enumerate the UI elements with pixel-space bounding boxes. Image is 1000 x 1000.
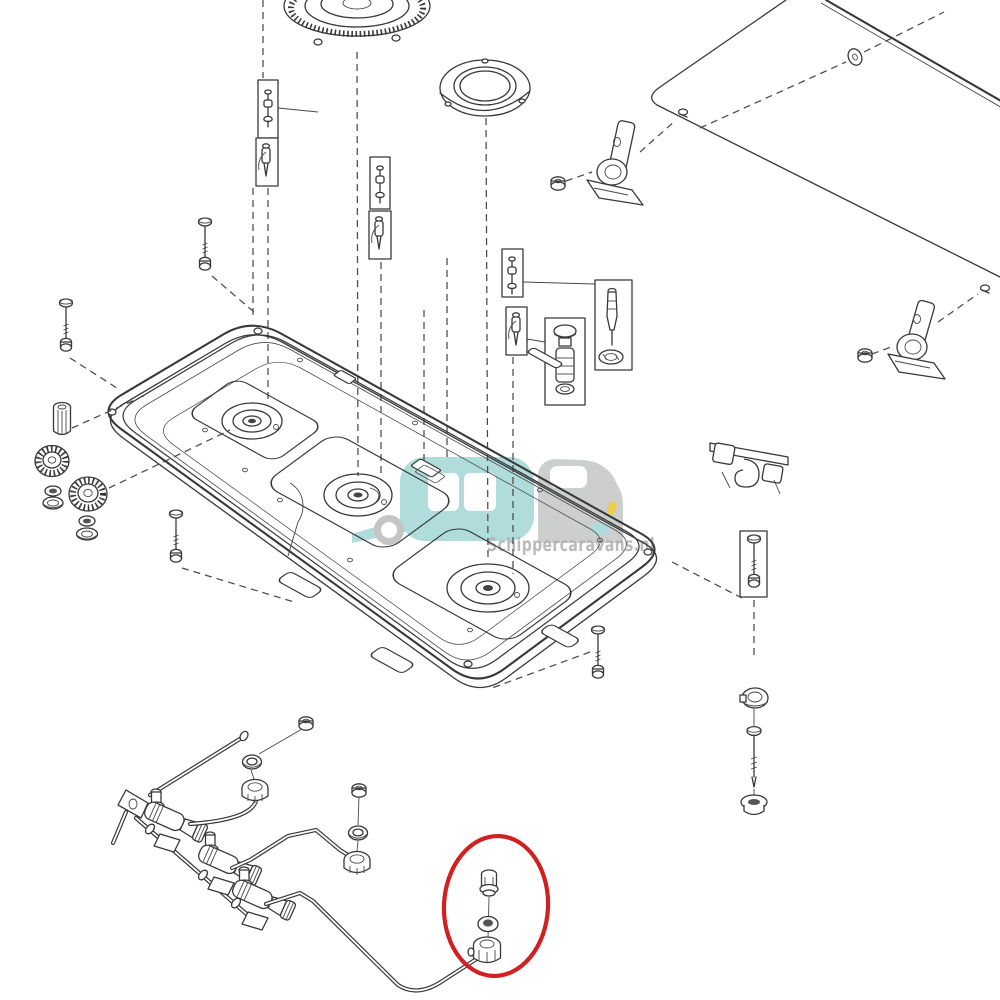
caravan-wheel	[378, 519, 401, 542]
boxed-spark-electrode	[595, 280, 632, 370]
burner-feed-pipe-3	[266, 893, 478, 990]
long-screw	[747, 727, 761, 788]
diagram-canvas: Schippercaravans.nl	[0, 0, 1000, 1000]
jet-screw	[480, 870, 498, 896]
mounting-screw-1	[60, 299, 73, 351]
manifold-elbow	[118, 790, 148, 818]
mounting-screw-3	[170, 510, 183, 562]
knurled-burner-cap-medium	[69, 477, 107, 511]
clamp-ring	[740, 688, 768, 708]
hinge-nut-left	[551, 177, 565, 190]
base-ring-medium	[77, 528, 98, 540]
burner-feed-pipe-1	[190, 795, 256, 824]
boxed-screw	[740, 531, 767, 597]
mounting-screw-2	[199, 218, 212, 270]
glass-lid-panel	[652, 0, 1000, 293]
boxed-electrode-left	[256, 138, 278, 186]
boxed-igniter-jet-left	[258, 80, 278, 138]
watermark-logo: Schippercaravans.nl	[352, 457, 655, 556]
gas-valve-1	[142, 789, 208, 852]
knurled-burner-cap-small	[35, 446, 69, 477]
mounting-screw-4	[592, 626, 605, 678]
lid-grommet	[846, 47, 865, 68]
car-accent	[592, 523, 609, 534]
caravan-window-2	[464, 473, 496, 511]
gas-manifold-assembly	[113, 717, 478, 991]
boxed-electrode-right	[506, 307, 527, 355]
pan-support-latch	[710, 443, 788, 494]
washer-small	[45, 486, 61, 496]
burner-feed-pipe-2	[232, 830, 351, 868]
jet-nozzle-set-3	[468, 870, 501, 963]
washer-medium	[79, 516, 95, 526]
igniter-barrel	[54, 403, 71, 436]
hinge-nut-right	[858, 349, 872, 362]
car-window	[550, 466, 587, 488]
grommet-cap	[741, 795, 767, 815]
jet-washer	[478, 917, 498, 932]
lid-screw-right	[981, 285, 990, 293]
jet-nozzle-set-2	[344, 784, 370, 875]
gas-supply-tube	[150, 730, 250, 795]
jet-nozzle-set-1	[242, 717, 313, 803]
lid-hinge-bracket-right	[888, 300, 945, 379]
burner-ring	[440, 59, 530, 116]
watermark-text: Schippercaravans.nl	[487, 534, 655, 556]
burner-cap-large	[284, 0, 430, 45]
exploded-parts-diagram: Schippercaravans.nl	[0, 0, 1000, 1000]
boxed-igniter-jet-right	[502, 249, 523, 297]
base-ring-small	[43, 497, 63, 509]
burner-well-left	[186, 377, 323, 462]
lid-hinge-bracket-left	[587, 120, 643, 205]
boxed-electrode-mid	[369, 211, 391, 259]
boxed-igniter-jet-mid	[370, 157, 390, 209]
